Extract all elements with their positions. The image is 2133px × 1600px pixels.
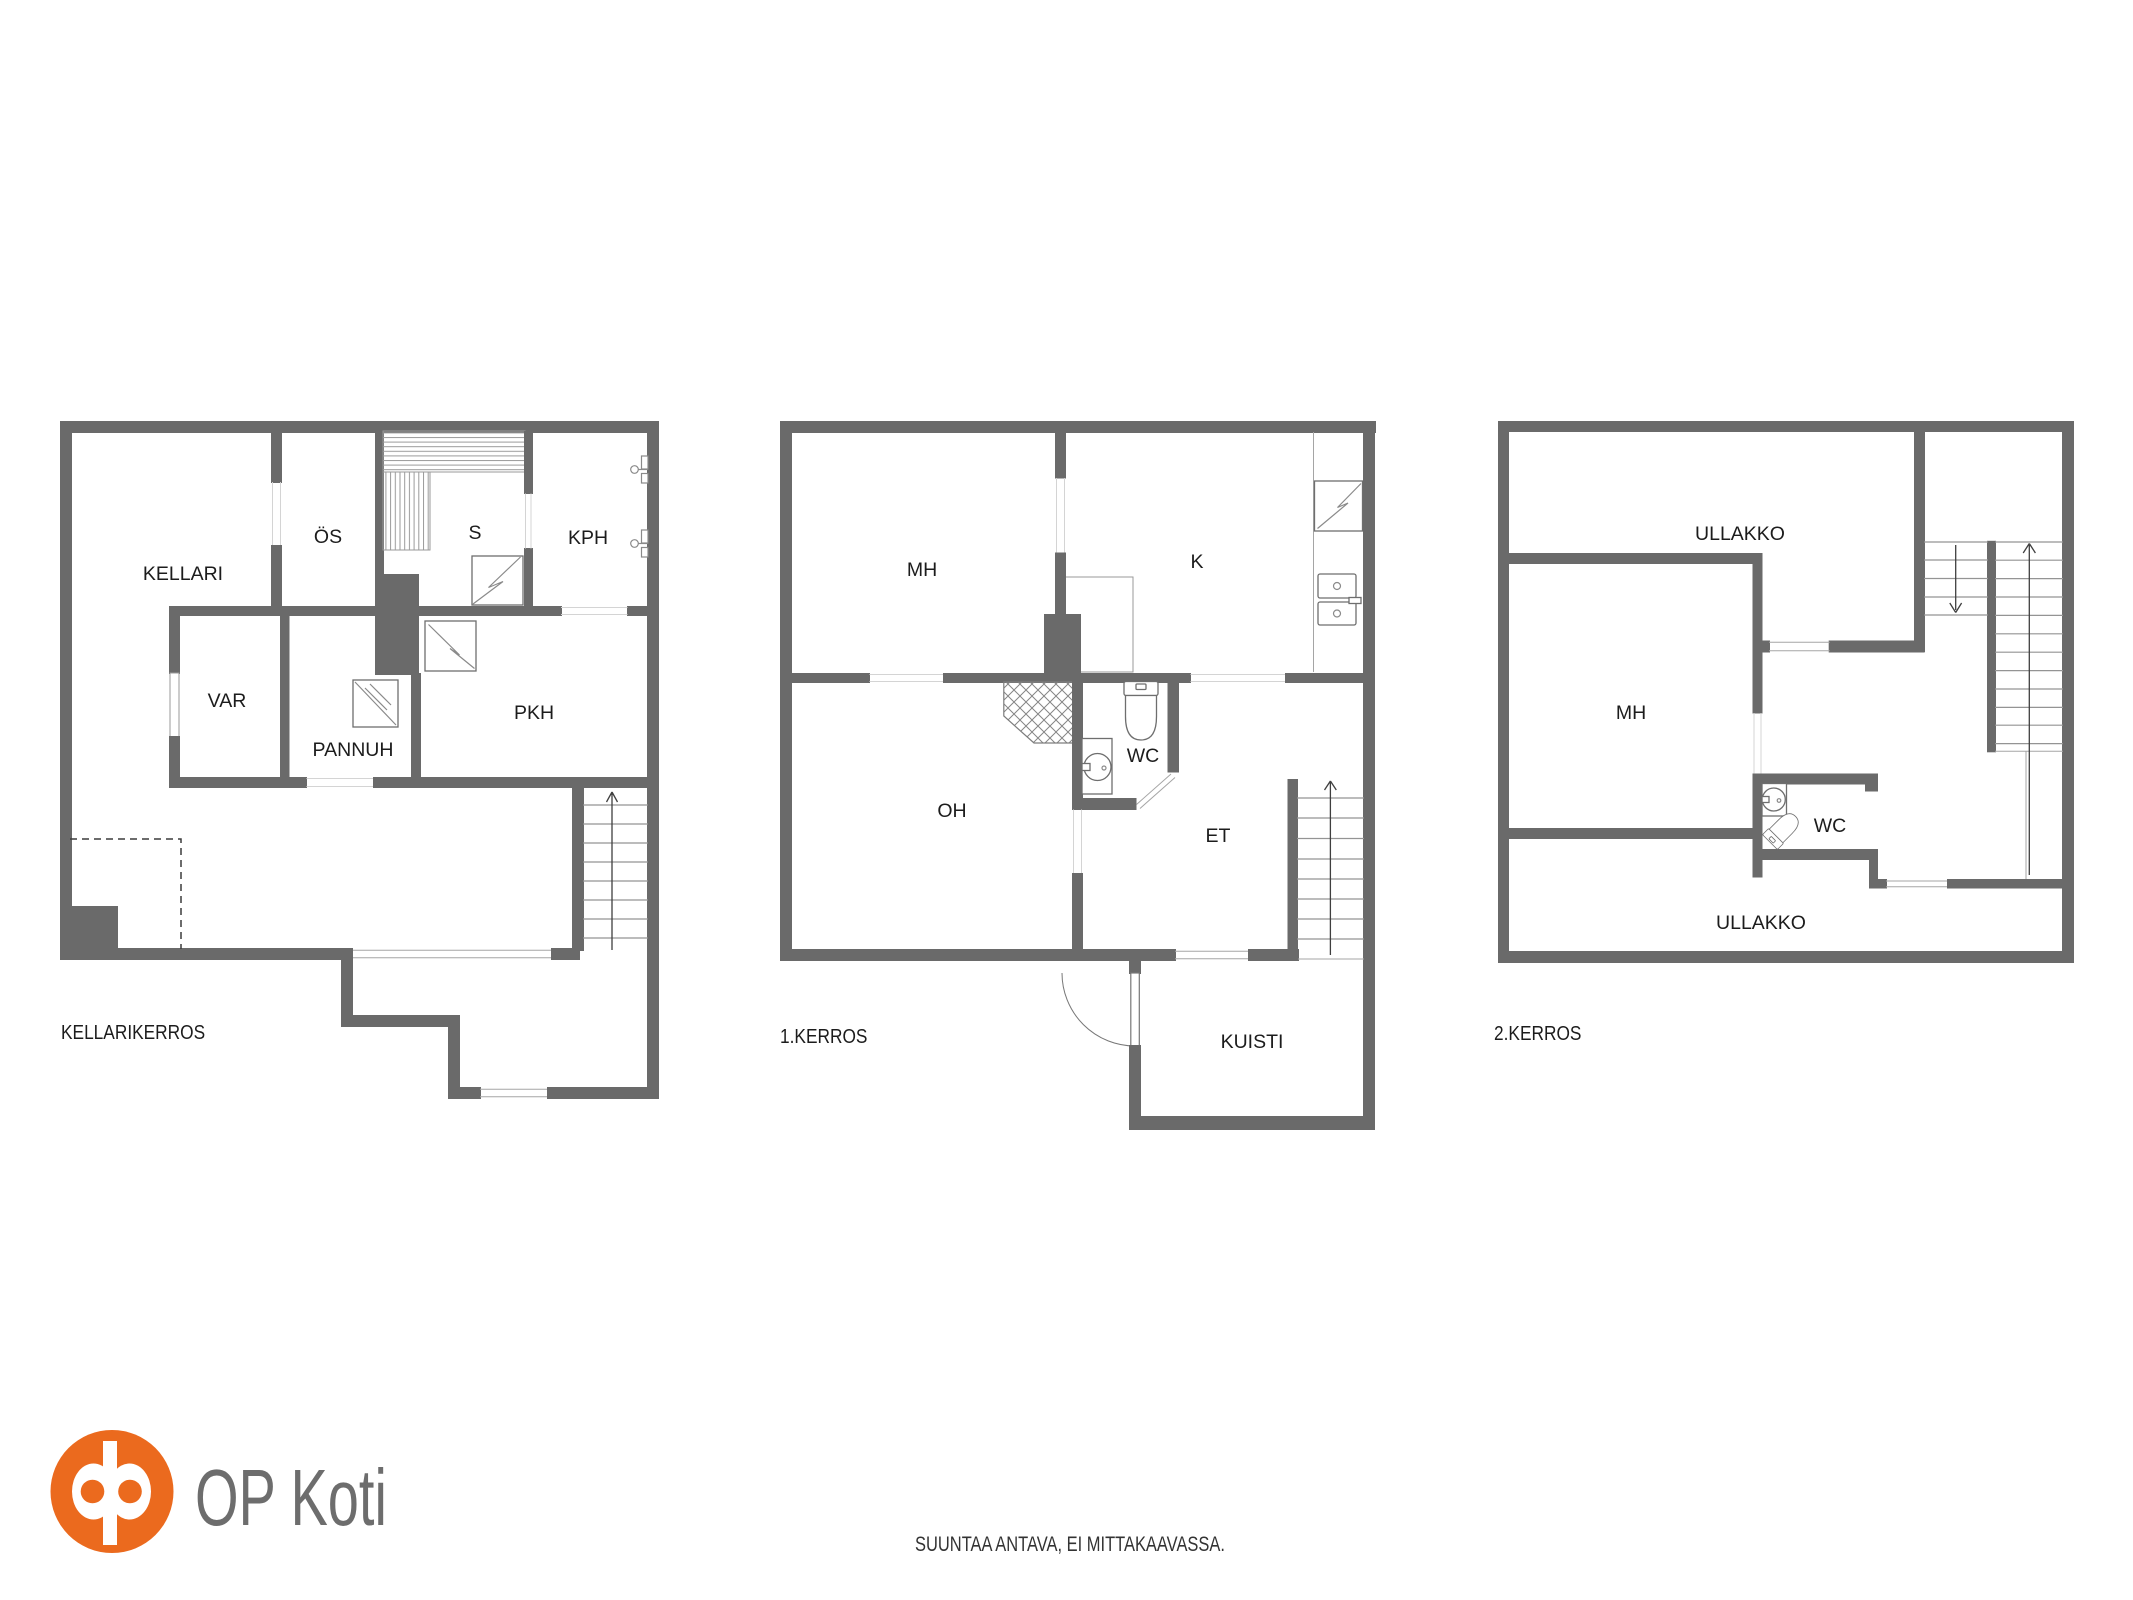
svg-text:SUUNTAA ANTAVA, EI MITTAKAAVAS: SUUNTAA ANTAVA, EI MITTAKAAVASSA. — [915, 1532, 1225, 1555]
svg-text:ET: ET — [1206, 825, 1231, 847]
svg-text:2.KERROS: 2.KERROS — [1494, 1022, 1581, 1044]
svg-text:PKH: PKH — [514, 702, 554, 724]
svg-text:ULLAKKO: ULLAKKO — [1716, 912, 1806, 934]
svg-text:ULLAKKO: ULLAKKO — [1695, 523, 1785, 545]
svg-text:OH: OH — [937, 800, 966, 822]
svg-text:MH: MH — [907, 559, 937, 581]
svg-text:VAR: VAR — [208, 690, 247, 712]
svg-text:S: S — [468, 522, 481, 544]
svg-text:KPH: KPH — [568, 527, 608, 549]
svg-text:WC: WC — [1127, 745, 1160, 767]
svg-text:WC: WC — [1814, 815, 1847, 837]
svg-text:1.KERROS: 1.KERROS — [780, 1025, 867, 1047]
svg-text:ÖS: ÖS — [314, 526, 342, 548]
svg-text:MH: MH — [1616, 702, 1646, 724]
svg-text:K: K — [1190, 551, 1203, 573]
svg-text:KELLARI: KELLARI — [143, 563, 223, 585]
svg-text:KUISTI: KUISTI — [1221, 1031, 1284, 1053]
svg-text:KELLARIKERROS: KELLARIKERROS — [61, 1021, 205, 1043]
svg-text:OP Koti: OP Koti — [195, 1452, 387, 1542]
svg-text:PANNUH: PANNUH — [313, 739, 394, 761]
